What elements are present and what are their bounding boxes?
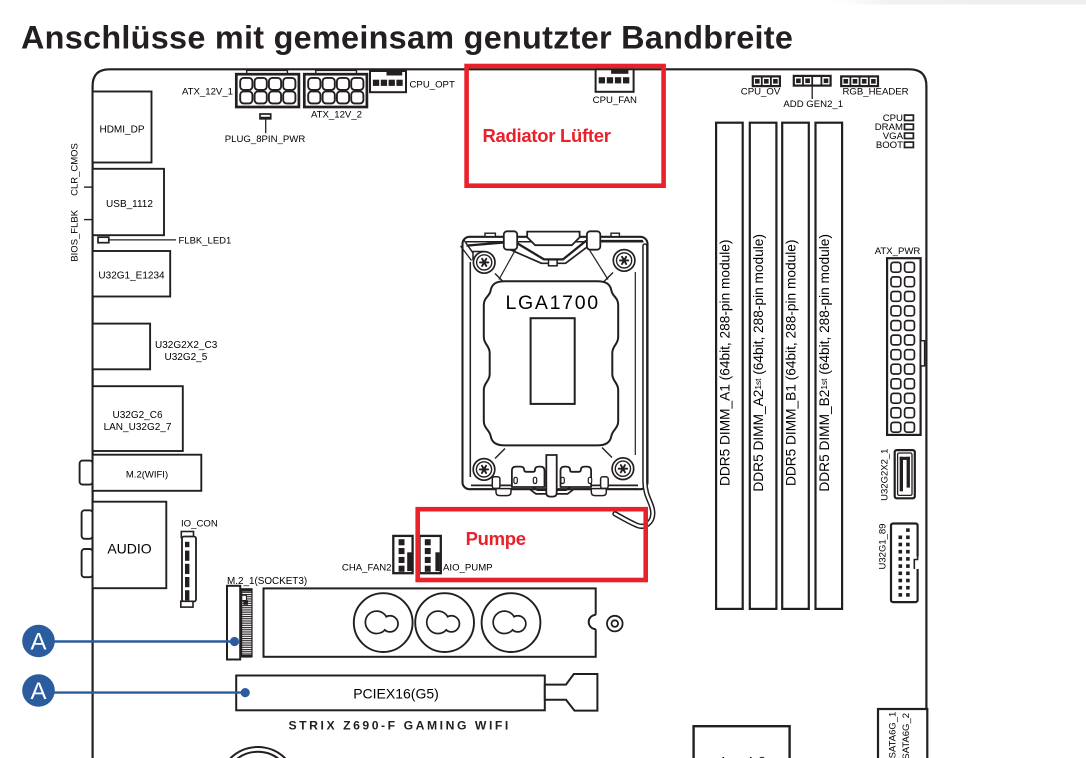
svg-text:Radiator Lüfter: Radiator Lüfter [483, 125, 611, 146]
svg-text:DDR5 DIMM_B21st (64bit, 288-pi: DDR5 DIMM_B21st (64bit, 288-pin module) [817, 234, 832, 492]
svg-text:FLBK_LED1: FLBK_LED1 [179, 235, 232, 246]
svg-text:STRIX Z690-F GAMING WIFI: STRIX Z690-F GAMING WIFI [289, 718, 511, 732]
svg-text:ADD GEN2_1: ADD GEN2_1 [783, 99, 843, 110]
svg-text:BIOS_FLBK: BIOS_FLBK [70, 209, 81, 261]
svg-text:A: A [30, 678, 46, 705]
svg-text:Anschlüsse mit gemeinsam genut: Anschlüsse mit gemeinsam genutzter Bandb… [21, 20, 793, 56]
svg-text:ATX_12V_2: ATX_12V_2 [311, 110, 362, 121]
svg-text:U32G1_89: U32G1_89 [877, 524, 888, 570]
svg-text:CLR_CMOS: CLR_CMOS [70, 143, 81, 196]
svg-text:ATX_PWR: ATX_PWR [875, 246, 921, 257]
svg-text:IO_CON: IO_CON [181, 519, 218, 530]
svg-text:CPU_OV: CPU_OV [741, 87, 781, 98]
svg-text:DDR5 DIMM_B1 (64bit, 288-pin m: DDR5 DIMM_B1 (64bit, 288-pin module) [784, 240, 799, 486]
svg-text:HDMI_DP: HDMI_DP [99, 124, 144, 135]
svg-text:SATA6G_2: SATA6G_2 [901, 713, 912, 758]
svg-text:DDR5 DIMM_A21st (64bit, 288-pi: DDR5 DIMM_A21st (64bit, 288-pin module) [751, 234, 766, 492]
svg-text:PLUG_8PIN_PWR: PLUG_8PIN_PWR [225, 134, 306, 145]
svg-text:SATA6G_1: SATA6G_1 [888, 712, 899, 758]
svg-text:USB_1112: USB_1112 [106, 199, 153, 210]
svg-text:AIO_PUMP: AIO_PUMP [443, 563, 493, 574]
svg-text:U32G2X2_C3: U32G2X2_C3 [155, 340, 218, 351]
svg-text:U32G2X2_1: U32G2X2_1 [879, 449, 890, 501]
svg-text:U32G1_E1234: U32G1_E1234 [98, 270, 165, 281]
svg-text:A: A [30, 629, 46, 656]
svg-text:M.2(WIFI): M.2(WIFI) [126, 470, 168, 481]
svg-text:RGB_HEADER: RGB_HEADER [843, 87, 909, 98]
svg-text:U32G2_C6: U32G2_C6 [112, 410, 162, 421]
svg-text:ATX_12V_1: ATX_12V_1 [182, 86, 233, 97]
svg-text:DDR5 DIMM_A1 (64bit, 288-pin m: DDR5 DIMM_A1 (64bit, 288-pin module) [717, 240, 732, 486]
svg-text:PCIEX16(G5): PCIEX16(G5) [353, 686, 439, 702]
svg-text:CPU_FAN: CPU_FAN [593, 95, 637, 106]
svg-text:intel: intel [721, 754, 752, 758]
svg-text:LGA1700: LGA1700 [506, 292, 600, 314]
svg-text:CHA_FAN2: CHA_FAN2 [342, 563, 392, 574]
svg-text:AUDIO: AUDIO [107, 541, 151, 557]
svg-text:CPU_OPT: CPU_OPT [410, 79, 455, 90]
svg-text:LAN_U32G2_7: LAN_U32G2_7 [104, 422, 172, 433]
svg-text:U32G2_5: U32G2_5 [165, 352, 208, 363]
svg-text:Pumpe: Pumpe [466, 528, 526, 549]
svg-text:BOOT: BOOT [876, 140, 903, 151]
